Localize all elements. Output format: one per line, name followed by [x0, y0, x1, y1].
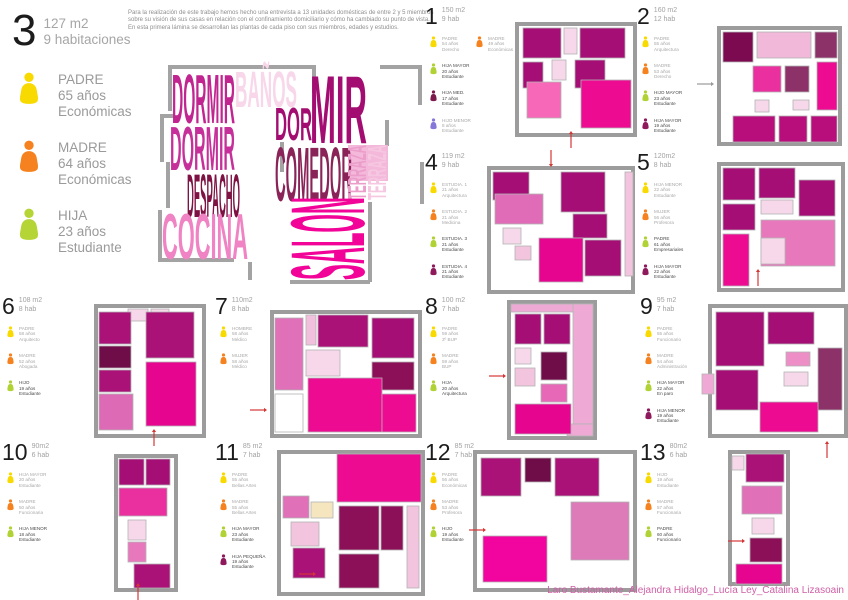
- featured-area: 127 m2: [43, 16, 130, 32]
- person-entry: MADRE 54 años Administración: [644, 353, 687, 369]
- unit-number: 11: [215, 442, 239, 462]
- room-rect: [585, 240, 621, 276]
- poster: 3 127 m2 9 habitaciones PADRE 65 años Ec…: [0, 0, 848, 600]
- person-occupation: Medicina: [442, 220, 467, 225]
- person-entry: PADRE 60 años Funcionario: [644, 526, 681, 542]
- unit-persons-list: ESTUDIA. 1 21 años Arquitectura ESTUDIA.…: [429, 182, 467, 280]
- room-rect: [515, 368, 535, 386]
- room-rect: [555, 458, 599, 496]
- person-occupation: Profesora: [442, 510, 462, 515]
- room-rect: [515, 348, 531, 364]
- room-rect: [146, 312, 194, 358]
- person-entry: HIJA MAYOR 23 años Estudiante: [219, 526, 265, 542]
- person-text: PADRE 65 años Económicas: [58, 72, 132, 120]
- featured-rooms: 9 habitaciones: [43, 32, 130, 48]
- person-icon: [429, 353, 438, 365]
- person-occupation: Funcionario: [657, 337, 681, 342]
- person-entry: MADRE 49 años Económicas: [475, 36, 513, 52]
- unit-room-count: 8 hab: [654, 162, 675, 171]
- person-entry: MADRE 55 años Bellas Artes: [219, 499, 265, 515]
- unit-number: 10: [2, 442, 28, 462]
- wall-segment: [248, 262, 252, 280]
- person-occupation: Administración: [657, 364, 687, 369]
- unit-area: 85 m2: [455, 443, 474, 452]
- person-occupation: Estudiante: [58, 240, 122, 256]
- unit-room-count: 8 hab: [232, 306, 253, 315]
- person-occupation: Empresariales: [654, 247, 683, 252]
- person-entry: HIJO 19 años Estudiante: [6, 380, 41, 396]
- unit-floorplan: [728, 450, 790, 586]
- person-occupation: Arquitectura: [442, 391, 467, 396]
- person-text: PADRE 55 años Arquitectura: [654, 36, 679, 52]
- unit-card-6: 6 108 m2 8 hab PADRE 58 años Arquitecto …: [2, 296, 213, 440]
- room-rect: [581, 80, 631, 128]
- person-occupation: Funcionaria: [19, 510, 43, 515]
- person-occupation: Económicas: [58, 104, 132, 120]
- person-occupation: Funcionaria: [657, 510, 681, 515]
- unit-floorplan: [717, 26, 842, 146]
- room-rect: [306, 350, 340, 376]
- room-rect: [283, 496, 309, 518]
- unit-area: 85 m2: [243, 443, 262, 452]
- unit-persons-list: PADRE 55 años Funcionario MADRE 54 años …: [644, 326, 687, 424]
- person-icon: [644, 526, 653, 538]
- room-rect: [702, 374, 714, 394]
- unit-number: 12: [425, 442, 451, 462]
- room-rect: [817, 62, 837, 110]
- person-entry: PADRE 65 años Económicas: [16, 72, 132, 120]
- unit-persons-list: PADRE 55 años Arquitectura MADRE 53 años…: [641, 36, 682, 134]
- unit-area: 80m2: [670, 443, 688, 452]
- unit-number: 1: [425, 6, 438, 26]
- person-age: 65 años: [58, 88, 132, 104]
- person-role: HIJA MAYOR: [442, 63, 469, 68]
- intro-paragraph-1: Para la realización de este trabajo hemo…: [128, 10, 434, 25]
- featured-unit-number: 3: [12, 12, 36, 50]
- room-rect: [561, 172, 605, 212]
- room-rect: [311, 502, 333, 518]
- unit-meta: 150 m2 9 hab: [442, 7, 465, 24]
- person-occupation: Estudiante: [232, 564, 265, 569]
- person-role: MADRE: [654, 63, 671, 68]
- room-rect: [382, 394, 416, 432]
- room-rect: [407, 506, 419, 588]
- room-rect: [742, 486, 782, 514]
- room-rect: [99, 346, 131, 368]
- room-rect: [541, 384, 567, 402]
- person-icon: [641, 209, 650, 221]
- person-age: 64 años: [58, 156, 132, 172]
- featured-word-floorplan: DORMIRBAÑOSDORMIRDORMIRCOMEDORTERRAZATER…: [130, 62, 425, 295]
- room-rect: [128, 542, 146, 562]
- person-entry: PADRE 56 años Económicas: [429, 472, 467, 488]
- room-rect: [275, 318, 303, 390]
- unit-meta: 85 m2 7 hab: [455, 443, 474, 460]
- person-text: PADRE 55 años Funcionario: [657, 326, 681, 342]
- room-rect: [99, 394, 133, 430]
- room-rect: [793, 100, 809, 110]
- room-rect: [753, 66, 781, 92]
- unit-persons-list: PADRE 56 años Económicas MADRE 53 años P…: [429, 472, 467, 543]
- room-rect: [779, 116, 807, 142]
- unit-area: 100 m2: [442, 297, 465, 306]
- person-text: HIJO MAYOR 23 años Estudiante: [654, 90, 682, 106]
- room-rect: [759, 168, 795, 198]
- person-icon: [429, 118, 438, 130]
- person-occupation: Estudiante: [654, 101, 682, 106]
- person-icon: [219, 554, 228, 566]
- person-text: HIJA MAYOR 20 años Estudiante: [442, 63, 469, 79]
- unit-card-7: 7 110m2 8 hab HOMBRE 58 años Médico MUJE…: [215, 296, 423, 440]
- entry-arrow-head: [264, 408, 267, 412]
- person-occupation: Estudiante: [19, 537, 47, 542]
- person-entry: HIJO 19 años Estudiante: [429, 526, 467, 542]
- unit-header: 10 90m2 6 hab: [2, 442, 213, 462]
- unit-room-count: 6 hab: [32, 452, 50, 461]
- unit-area: 108 m2: [19, 297, 42, 306]
- person-icon: [6, 380, 15, 392]
- person-text: HIJA 20 años Arquitectura: [442, 380, 467, 396]
- unit-persons-list: PADRE 55 años Bellas Artes MADRE 55 años…: [219, 472, 265, 570]
- unit-card-13: 13 80m2 6 hab HIJO 19 años Estudiante MA…: [640, 442, 846, 598]
- unit-persons-list: HIJA MAYOR 20 años Estudiante MADRE 50 a…: [6, 472, 47, 543]
- unit-floorplan: [94, 304, 206, 438]
- person-occupation: Estudiante: [657, 418, 685, 423]
- person-entry: HIJA 20 años Arquitectura: [429, 380, 467, 396]
- featured-header: 3 127 m2 9 habitaciones: [12, 12, 131, 50]
- person-occupation: Estudiante: [442, 128, 471, 133]
- unit-card-11: 11 85 m2 7 hab PADRE 55 años Bellas Arte…: [215, 442, 423, 598]
- unit-meta: 85 m2 7 hab: [243, 443, 262, 460]
- person-text: HIJA MENOR 18 años Estudiante: [19, 526, 47, 542]
- person-occupation: Arquitectura: [442, 193, 467, 198]
- unit-meta: 80m2 6 hab: [670, 443, 688, 460]
- room-rect: [339, 506, 379, 550]
- person-entry: MADRE 53 años Derecho: [641, 63, 682, 79]
- unit-meta: 119 m2 9 hab: [442, 153, 465, 170]
- room-rect: [573, 214, 607, 238]
- room-rect: [381, 506, 403, 550]
- room-rect: [515, 404, 571, 434]
- person-occupation: Económicas: [442, 483, 467, 488]
- room-rect: [761, 200, 793, 214]
- unit-area: 150 m2: [442, 7, 465, 16]
- room-rect: [515, 314, 541, 344]
- room-rect: [503, 228, 521, 244]
- person-text: HIJA MAYOR 22 años En paro: [657, 380, 684, 396]
- room-rect: [525, 458, 551, 482]
- unit-card-8: 8 100 m2 7 hab PADRE 59 años 3º BUP MADR…: [425, 296, 638, 440]
- person-entry: MADRE 53 años Profesora: [429, 499, 467, 515]
- room-rect: [786, 352, 810, 366]
- room-rect: [544, 314, 570, 344]
- person-icon: [6, 526, 15, 538]
- person-text: HIJA MENOR 19 años Estudiante: [657, 408, 685, 424]
- person-text: MADRE 57 años Funcionaria: [657, 499, 681, 515]
- person-role: MADRE: [58, 140, 132, 156]
- person-text: MADRE 53 años Profesora: [442, 499, 462, 515]
- person-icon: [644, 499, 653, 511]
- person-text: HIJA MAYOR 20 años Estudiante: [19, 472, 46, 488]
- unit-persons-list: HOMBRE 58 años Médico MUJER 58 años Médi…: [219, 326, 252, 369]
- person-icon: [641, 264, 650, 276]
- person-icon: [429, 36, 438, 48]
- room-rect: [99, 312, 131, 344]
- person-icon: [16, 72, 42, 106]
- room-rect: [746, 454, 784, 482]
- person-entry: PADRE 59 años 3º BUP: [429, 326, 467, 342]
- room-word: COCINA: [162, 201, 248, 273]
- unit-floorplan: [114, 454, 178, 592]
- person-text: HIJO 19 años Estudiante: [442, 526, 464, 542]
- person-icon: [641, 182, 650, 194]
- person-icon: [429, 326, 438, 338]
- person-icon: [644, 380, 653, 392]
- person-entry: PADRE 58 años Arquitecto: [6, 326, 41, 342]
- person-occupation: Estudiante: [19, 483, 46, 488]
- room-rect: [750, 538, 782, 562]
- unit-number: 6: [2, 296, 15, 316]
- person-occupation: Estudiante: [442, 247, 467, 252]
- wall-segment: [418, 65, 422, 105]
- unit-persons-list: PADRE 58 años Arquitecto MADRE 52 años A…: [6, 326, 41, 397]
- person-occupation: Estudiante: [657, 483, 679, 488]
- person-text: HIJA MED. 17 años Estudiante: [442, 90, 464, 106]
- unit-header: 2 160 m2 12 hab: [637, 6, 846, 26]
- person-occupation: Económicas: [58, 172, 132, 188]
- room-rect: [723, 32, 753, 62]
- room-rect: [723, 168, 755, 200]
- person-entry: HIJA MENOR 19 años Estudiante: [644, 408, 687, 424]
- room-rect: [481, 458, 521, 496]
- room-rect: [573, 304, 593, 424]
- unit-floorplan: [708, 304, 848, 438]
- room-rect: [716, 312, 764, 366]
- unit-card-10: 10 90m2 6 hab HIJA MAYOR 20 años Estudia…: [2, 442, 213, 598]
- person-icon: [219, 326, 228, 338]
- intro-text: Para la realización de este trabajo hemo…: [128, 10, 434, 32]
- person-text: MUJER 58 años Médico: [232, 353, 248, 369]
- wall-segment: [420, 162, 424, 204]
- room-rect: [372, 318, 414, 358]
- person-entry: PADRE 55 años Arquitectura: [641, 36, 682, 52]
- person-text: HOMBRE 58 años Médico: [232, 326, 252, 342]
- unit-number: 9: [640, 296, 653, 316]
- person-role: PADRE: [58, 72, 132, 88]
- room-rect: [818, 348, 842, 410]
- room-word: SALON: [271, 197, 387, 280]
- person-entry: HIJA MAYOR 22 años En paro: [644, 380, 687, 396]
- person-icon: [429, 526, 438, 538]
- person-entry: MADRE 59 años BUP: [429, 353, 467, 369]
- person-occupation: Estudiante: [654, 274, 681, 279]
- room-rect: [785, 66, 809, 92]
- person-text: HIJA MENOR 22 años Estudiante: [654, 182, 682, 198]
- person-text: MADRE 64 años Económicas: [58, 140, 132, 188]
- unit-number: 4: [425, 152, 438, 172]
- person-text: HIJA 23 años Estudiante: [58, 208, 122, 256]
- room-rect: [539, 238, 583, 282]
- featured-meta: 127 m2 9 habitaciones: [43, 16, 130, 48]
- person-occupation: Estudiante: [442, 274, 467, 279]
- room-rect: [337, 454, 421, 502]
- room-rect: [99, 370, 131, 392]
- room-rect: [146, 362, 196, 426]
- person-entry: HIJA MAYOR 20 años Estudiante: [6, 472, 47, 488]
- person-entry: HIJA MAYOR 22 años Estudiante: [641, 264, 683, 280]
- room-rect: [291, 522, 319, 546]
- person-text: HIJO 19 años Estudiante: [19, 380, 41, 396]
- unit-room-count: 7 hab: [243, 452, 262, 461]
- person-entry: HIJA MAYOR 19 años Estudiante: [641, 118, 682, 134]
- person-icon: [429, 182, 438, 194]
- room-rect: [339, 554, 379, 588]
- room-rect: [732, 456, 744, 470]
- person-entry: HIJO MENOR 8 años Estudiante: [429, 118, 471, 134]
- person-icon: [429, 209, 438, 221]
- person-icon: [219, 526, 228, 538]
- room-rect: [119, 459, 144, 485]
- unit-card-2: 2 160 m2 12 hab PADRE 55 años Arquitectu…: [637, 6, 846, 150]
- room-rect: [564, 28, 577, 54]
- person-text: HIJA PEQUEÑA 19 años Estudiante: [232, 554, 265, 570]
- person-role: MADRE: [19, 353, 37, 358]
- person-text: PADRE 61 años Empresariales: [654, 236, 683, 252]
- person-occupation: Derecho: [654, 74, 671, 79]
- unit-room-count: 6 hab: [670, 452, 688, 461]
- person-text: MADRE 52 años Abogada: [19, 353, 37, 369]
- unit-area: 90m2: [32, 443, 50, 452]
- person-occupation: Arquitectura: [654, 47, 679, 52]
- room-rect: [571, 502, 629, 560]
- person-occupation: Económicas: [488, 47, 513, 52]
- person-text: MADRE 53 años Derecho: [654, 63, 671, 79]
- room-rect: [736, 564, 782, 584]
- unit-card-1: 1 150 m2 9 hab PADRE 54 años Derecho MAD…: [425, 6, 637, 150]
- unit-area: 95 m2: [657, 297, 676, 306]
- unit-floorplan: [487, 166, 635, 294]
- unit-room-count: 12 hab: [654, 16, 677, 25]
- person-occupation: Estudiante: [442, 74, 469, 79]
- person-occupation: Estudiante: [654, 128, 681, 133]
- person-icon: [429, 236, 438, 248]
- person-role: MADRE: [442, 353, 459, 358]
- room-rect: [760, 402, 818, 432]
- unit-number: 5: [637, 152, 650, 172]
- person-role: MUJER: [232, 353, 248, 358]
- person-text: ESTUDIA. 4 21 años Estudiante: [442, 264, 467, 280]
- person-entry: MADRE 57 años Funcionaria: [644, 499, 681, 515]
- person-occupation: Bellas Artes: [232, 483, 256, 488]
- room-rect: [723, 204, 755, 230]
- person-icon: [6, 472, 15, 484]
- person-entry: HIJA MED. 17 años Estudiante: [429, 90, 471, 106]
- unit-number: 13: [640, 442, 666, 462]
- person-text: MADRE 59 años BUP: [442, 353, 459, 369]
- room-rect: [799, 180, 835, 216]
- unit-persons-list: HIJO 19 años Estudiante MADRE 57 años Fu…: [644, 472, 681, 543]
- person-occupation: Arquitecto: [19, 337, 40, 342]
- room-rect: [483, 536, 547, 582]
- unit-meta: 108 m2 8 hab: [19, 297, 42, 314]
- wall-segment: [290, 280, 370, 284]
- room-rect: [784, 372, 808, 386]
- person-icon: [644, 408, 653, 420]
- room-rect: [541, 352, 567, 380]
- person-icon: [6, 326, 15, 338]
- person-text: HIJO 19 años Estudiante: [657, 472, 679, 488]
- person-icon: [6, 353, 15, 365]
- room-rect: [495, 194, 543, 224]
- room-rect: [755, 100, 769, 112]
- person-text: MADRE 50 años Funcionaria: [19, 499, 43, 515]
- person-role: ESTUDIA. 2: [442, 209, 467, 214]
- unit-meta: 90m2 6 hab: [32, 443, 50, 460]
- person-entry: HIJA PEQUEÑA 19 años Estudiante: [219, 554, 265, 570]
- room-rect: [768, 312, 814, 344]
- person-text: PADRE 54 años Derecho: [442, 36, 459, 52]
- unit-persons-list: PADRE 59 años 3º BUP MADRE 59 años BUP H…: [429, 326, 467, 397]
- unit-persons-list: PADRE 54 años Derecho MADRE 49 años Econ…: [429, 36, 471, 134]
- person-entry: PADRE 55 años Bellas Artes: [219, 472, 265, 488]
- unit-meta: 160 m2 12 hab: [654, 7, 677, 24]
- person-icon: [219, 353, 228, 365]
- unit-floorplan: [717, 162, 845, 292]
- room-rect: [552, 60, 566, 80]
- person-entry: HIJA MENOR 18 años Estudiante: [6, 526, 47, 542]
- credits: Laro Bustamante_Alejandra Hidalgo_Lucía …: [547, 585, 844, 596]
- person-entry: ESTUDIA. 2 21 años Medicina: [429, 209, 467, 225]
- person-text: PADRE 59 años 3º BUP: [442, 326, 458, 342]
- unit-floorplan: [277, 450, 425, 596]
- unit-number: 8: [425, 296, 438, 316]
- person-age: 23 años: [58, 224, 122, 240]
- person-occupation: 3º BUP: [442, 337, 458, 342]
- person-entry: ESTUDIA. 4 21 años Estudiante: [429, 264, 467, 280]
- featured-persons-list: PADRE 65 años Económicas MADRE 64 años E…: [16, 72, 132, 256]
- person-occupation: Estudiante: [19, 391, 41, 396]
- unit-area: 110m2: [232, 297, 253, 306]
- room-rect: [716, 370, 758, 410]
- room-rect: [625, 172, 633, 276]
- room-rect: [733, 116, 775, 142]
- person-icon: [641, 236, 650, 248]
- person-occupation: Médico: [232, 364, 248, 369]
- wall-segment: [380, 65, 422, 69]
- unit-floorplan: [473, 450, 637, 592]
- unit-floorplan: [507, 300, 597, 440]
- person-text: MADRE 49 años Económicas: [488, 36, 513, 52]
- room-rect: [308, 378, 382, 432]
- unit-number: 7: [215, 296, 228, 316]
- person-icon: [475, 36, 484, 48]
- person-entry: MUJER 56 años Profesora: [641, 209, 683, 225]
- person-text: MADRE 55 años Bellas Artes: [232, 499, 256, 515]
- person-text: HIJA MAYOR 22 años Estudiante: [654, 264, 681, 280]
- unit-room-count: 7 hab: [455, 452, 474, 461]
- unit-card-12: 12 85 m2 7 hab PADRE 56 años Económicas …: [425, 442, 638, 598]
- unit-meta: 95 m2 7 hab: [657, 297, 676, 314]
- person-occupation: Estudiante: [442, 101, 464, 106]
- person-occupation: Bellas Artes: [232, 510, 256, 515]
- person-entry: HIJA MAYOR 20 años Estudiante: [429, 63, 471, 79]
- room-rect: [523, 28, 561, 58]
- unit-room-count: 9 hab: [442, 162, 465, 171]
- person-entry: MADRE 50 años Funcionaria: [6, 499, 47, 515]
- person-entry: HOMBRE 58 años Médico: [219, 326, 252, 342]
- person-entry: HIJO MAYOR 23 años Estudiante: [641, 90, 682, 106]
- intro-paragraph-2: En esta primera lámina se desarrollan la…: [128, 25, 434, 32]
